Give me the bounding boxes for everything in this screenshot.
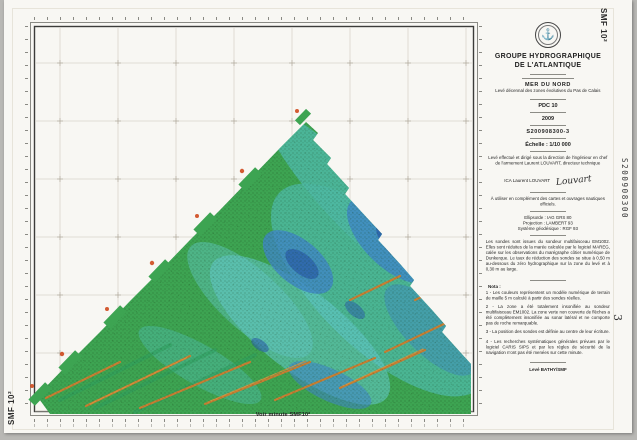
bottom-tick-marks: [34, 419, 473, 422]
signature-area: ICA Laurent LOUVART Louvart: [486, 173, 610, 189]
divider: [530, 112, 566, 113]
nota-2: 2 - La zone a été totalement insonifiée …: [486, 304, 610, 326]
left-tick-marks: [25, 26, 28, 411]
divider: [530, 280, 566, 281]
title-block: ⚓ GROUPE HYDROGRAPHIQUE DE L'ATLANTIQUE …: [486, 22, 610, 372]
geodesy-block: Ellipsoïde : IAG GRS 80 Projection : LAM…: [486, 215, 610, 232]
divider: [530, 99, 566, 100]
corner-label-bottom-left: SMF 10²: [7, 391, 16, 425]
nota-1: 1 - Les couleurs représentent un modèle …: [486, 290, 610, 301]
direction-note: Levé effectué et dirigé sous la directio…: [486, 155, 610, 166]
divider: [530, 138, 566, 139]
organization-name: GROUPE HYDROGRAPHIQUE DE L'ATLANTIQUE: [486, 52, 610, 71]
divider: [522, 78, 574, 79]
handwritten-sheet-number: 3: [611, 314, 624, 321]
stamp-inner-ring: [538, 25, 558, 45]
nota-4: 4 - Les recherches systématiques général…: [486, 339, 610, 356]
usage-note: À utiliser en complément des cartes et o…: [486, 196, 610, 207]
divider: [530, 125, 566, 126]
divider: [530, 362, 566, 363]
registration-number: S200908300-3: [486, 129, 610, 135]
survey-year: 2009: [486, 116, 610, 122]
survey-footer: Levé BATHY/SMF: [486, 367, 610, 372]
divider: [530, 74, 566, 75]
scanned-survey-sheet: Voir minute SMF10² SMF 10² SMF 10² S2009…: [0, 0, 637, 440]
signature-script: Louvart: [556, 174, 592, 188]
signatory-title: ICA Laurent LOUVART: [504, 178, 550, 183]
sheet-code: PDC 10: [486, 103, 610, 109]
bottom-tick-labels-row: [34, 424, 473, 427]
handwritten-registration: S200908300: [620, 158, 629, 219]
notes-section: Nota : 1 - Les couleurs représentent un …: [486, 284, 610, 359]
divider: [530, 192, 566, 193]
top-tick-marks: [34, 17, 473, 20]
geodesy-datum: Système géodésique : RGF 93: [486, 226, 610, 232]
sounding-note: Les sondes sont issues du sondeur multif…: [486, 239, 610, 272]
divider: [530, 235, 566, 236]
right-tick-marks: [479, 26, 482, 411]
hydrographic-service-stamp: ⚓: [535, 22, 561, 48]
nota-3: 3 - La position des sondes est définie a…: [486, 329, 610, 335]
divider: [530, 211, 566, 212]
map-caption: Voir minute SMF10²: [228, 412, 338, 418]
survey-title: Levé décennal des zones évolutives du Pa…: [486, 88, 610, 94]
nota-label: Nota :: [488, 284, 610, 289]
divider: [530, 151, 566, 152]
scale-label: Échelle : 1/10 000: [486, 142, 610, 148]
